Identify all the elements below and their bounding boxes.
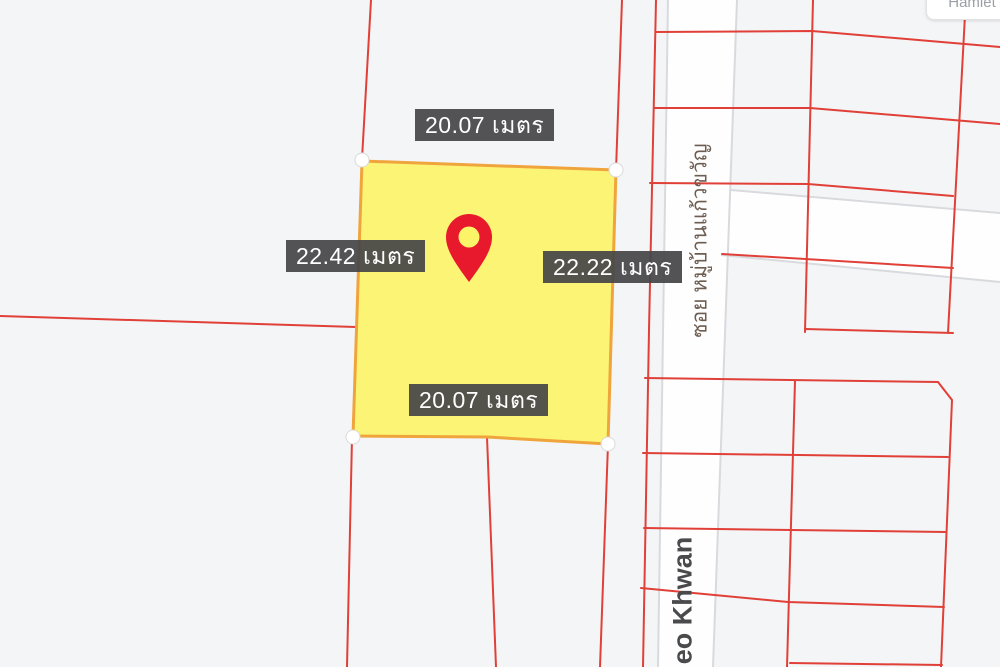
map-tooltip-partial: Hamlet [926, 0, 1000, 20]
map-canvas[interactable]: 20.07 เมตร 22.42 เมตร 22.22 เมตร 20.07 เ… [0, 0, 1000, 667]
dimension-label-right: 22.22 เมตร [543, 251, 682, 283]
vertex-handle [346, 430, 360, 444]
road-name-khwan-label: eo Khwan [668, 526, 699, 667]
map-layers [0, 0, 1000, 667]
vertex-handle [355, 153, 369, 167]
vertex-handle [601, 437, 615, 451]
dimension-label-bottom: 20.07 เมตร [409, 384, 548, 416]
vertex-handle [609, 163, 623, 177]
road-name-soi-label: ซอย หมู่บ้านแก้วขวัญ [684, 86, 717, 396]
dimension-label-left: 22.42 เมตร [286, 240, 425, 272]
dimension-label-top: 20.07 เมตร [415, 109, 554, 141]
